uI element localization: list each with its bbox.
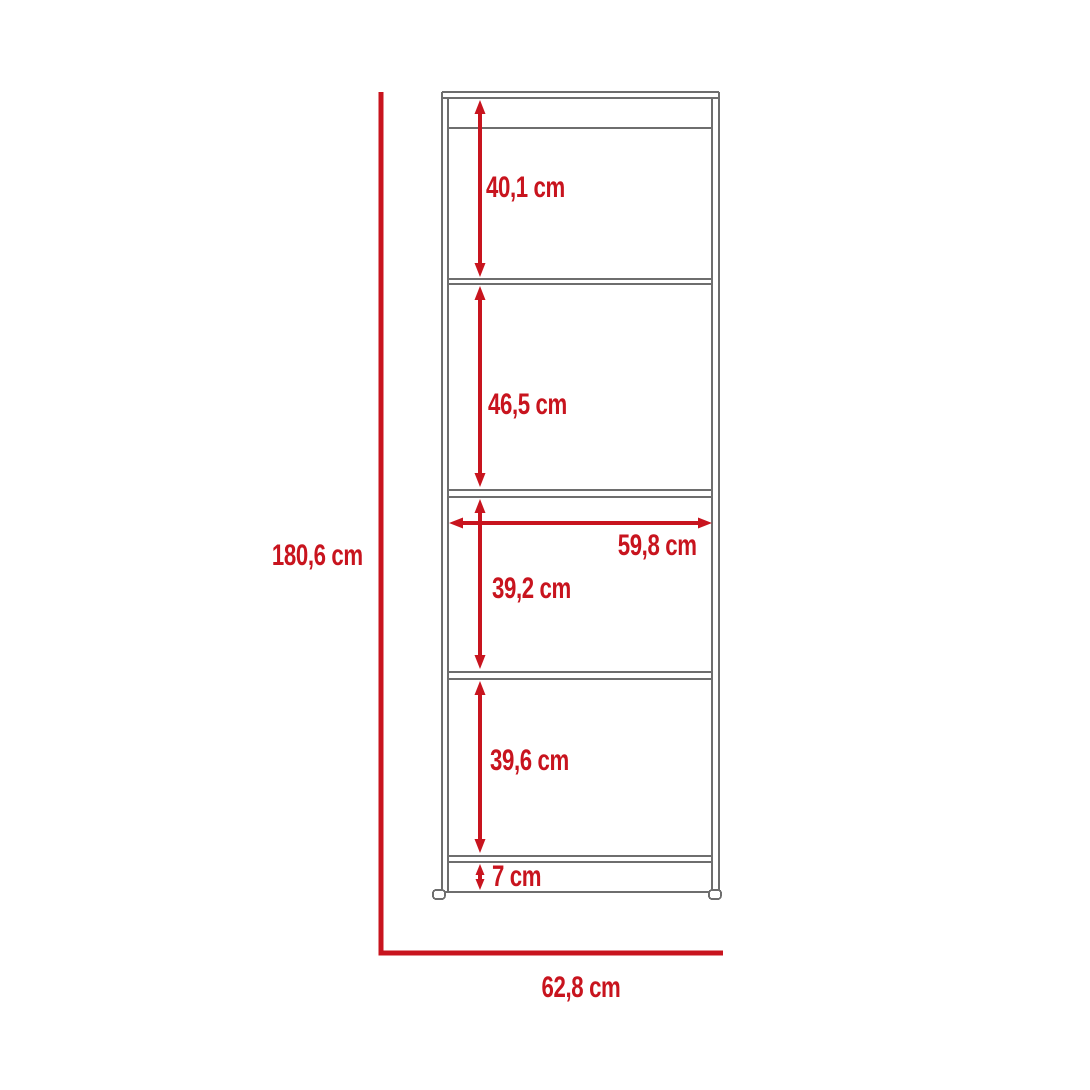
diagram-linework (0, 0, 1090, 1090)
dimension-diagram: 180,6 cm 62,8 cm 40,1 cm 46,5 cm 59,8 cm… (0, 0, 1090, 1090)
cabinet-right-foot (709, 890, 721, 899)
base-height-label: 7 cm (492, 862, 541, 892)
arrow-interior-width (449, 518, 712, 529)
section-2-label: 46,5 cm (488, 390, 567, 420)
total-width-label: 62,8 cm (542, 973, 621, 1003)
cabinet-left-foot (433, 890, 445, 899)
section-4-label: 39,6 cm (490, 746, 569, 776)
arrow-section-2 (475, 286, 486, 487)
section-1-label: 40,1 cm (486, 173, 565, 203)
dimension-arrows (449, 100, 712, 890)
arrow-section-1 (475, 100, 486, 277)
arrow-section-4 (475, 681, 486, 853)
cabinet-outline (433, 92, 721, 899)
arrow-base-height (476, 864, 485, 890)
total-height-label: 180,6 cm (272, 541, 363, 571)
section-3-label: 39,2 cm (492, 574, 571, 604)
interior-width-label: 59,8 cm (618, 531, 697, 561)
